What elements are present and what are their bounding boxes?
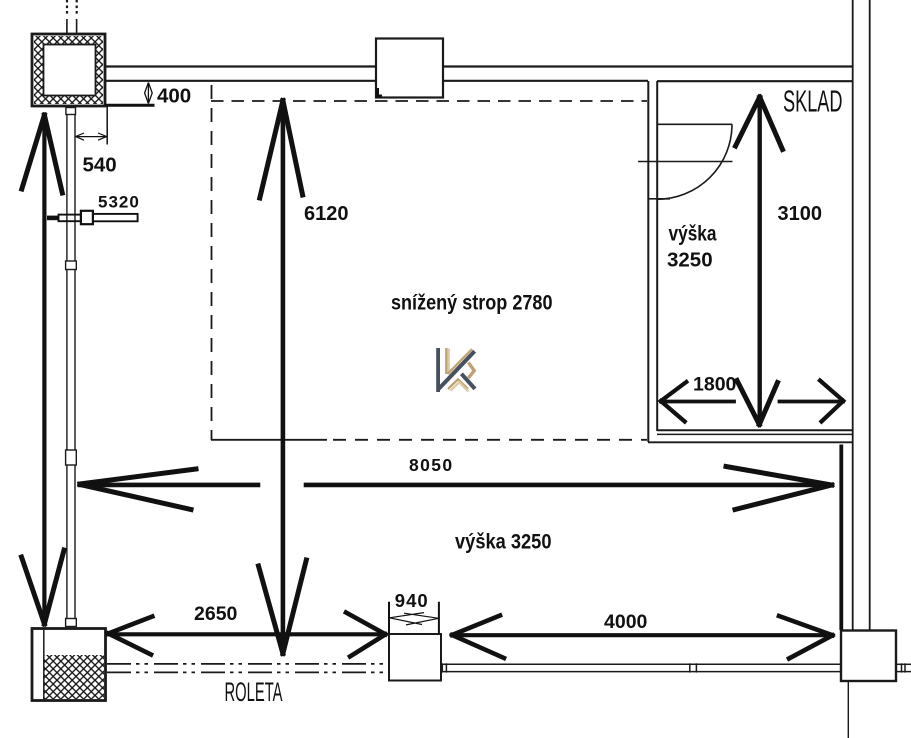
svg-text:SKLAD: SKLAD — [783, 84, 843, 119]
svg-text:ROLETA: ROLETA — [225, 677, 283, 707]
svg-text:výška: výška — [669, 223, 717, 246]
svg-text:výška 3250: výška 3250 — [455, 531, 552, 554]
svg-text:3100: 3100 — [778, 203, 823, 225]
svg-text:4000: 4000 — [604, 611, 648, 633]
svg-text:940: 940 — [395, 590, 429, 611]
svg-text:snížený strop 2780: snížený strop 2780 — [391, 291, 553, 314]
svg-text:400: 400 — [157, 85, 191, 108]
svg-text:1800: 1800 — [693, 373, 737, 395]
svg-text:2650: 2650 — [194, 603, 238, 625]
svg-text:540: 540 — [83, 153, 117, 176]
svg-text:8050: 8050 — [409, 455, 454, 475]
svg-text:6120: 6120 — [304, 203, 349, 225]
svg-text:3250: 3250 — [667, 249, 713, 272]
svg-text:5320: 5320 — [98, 193, 140, 212]
